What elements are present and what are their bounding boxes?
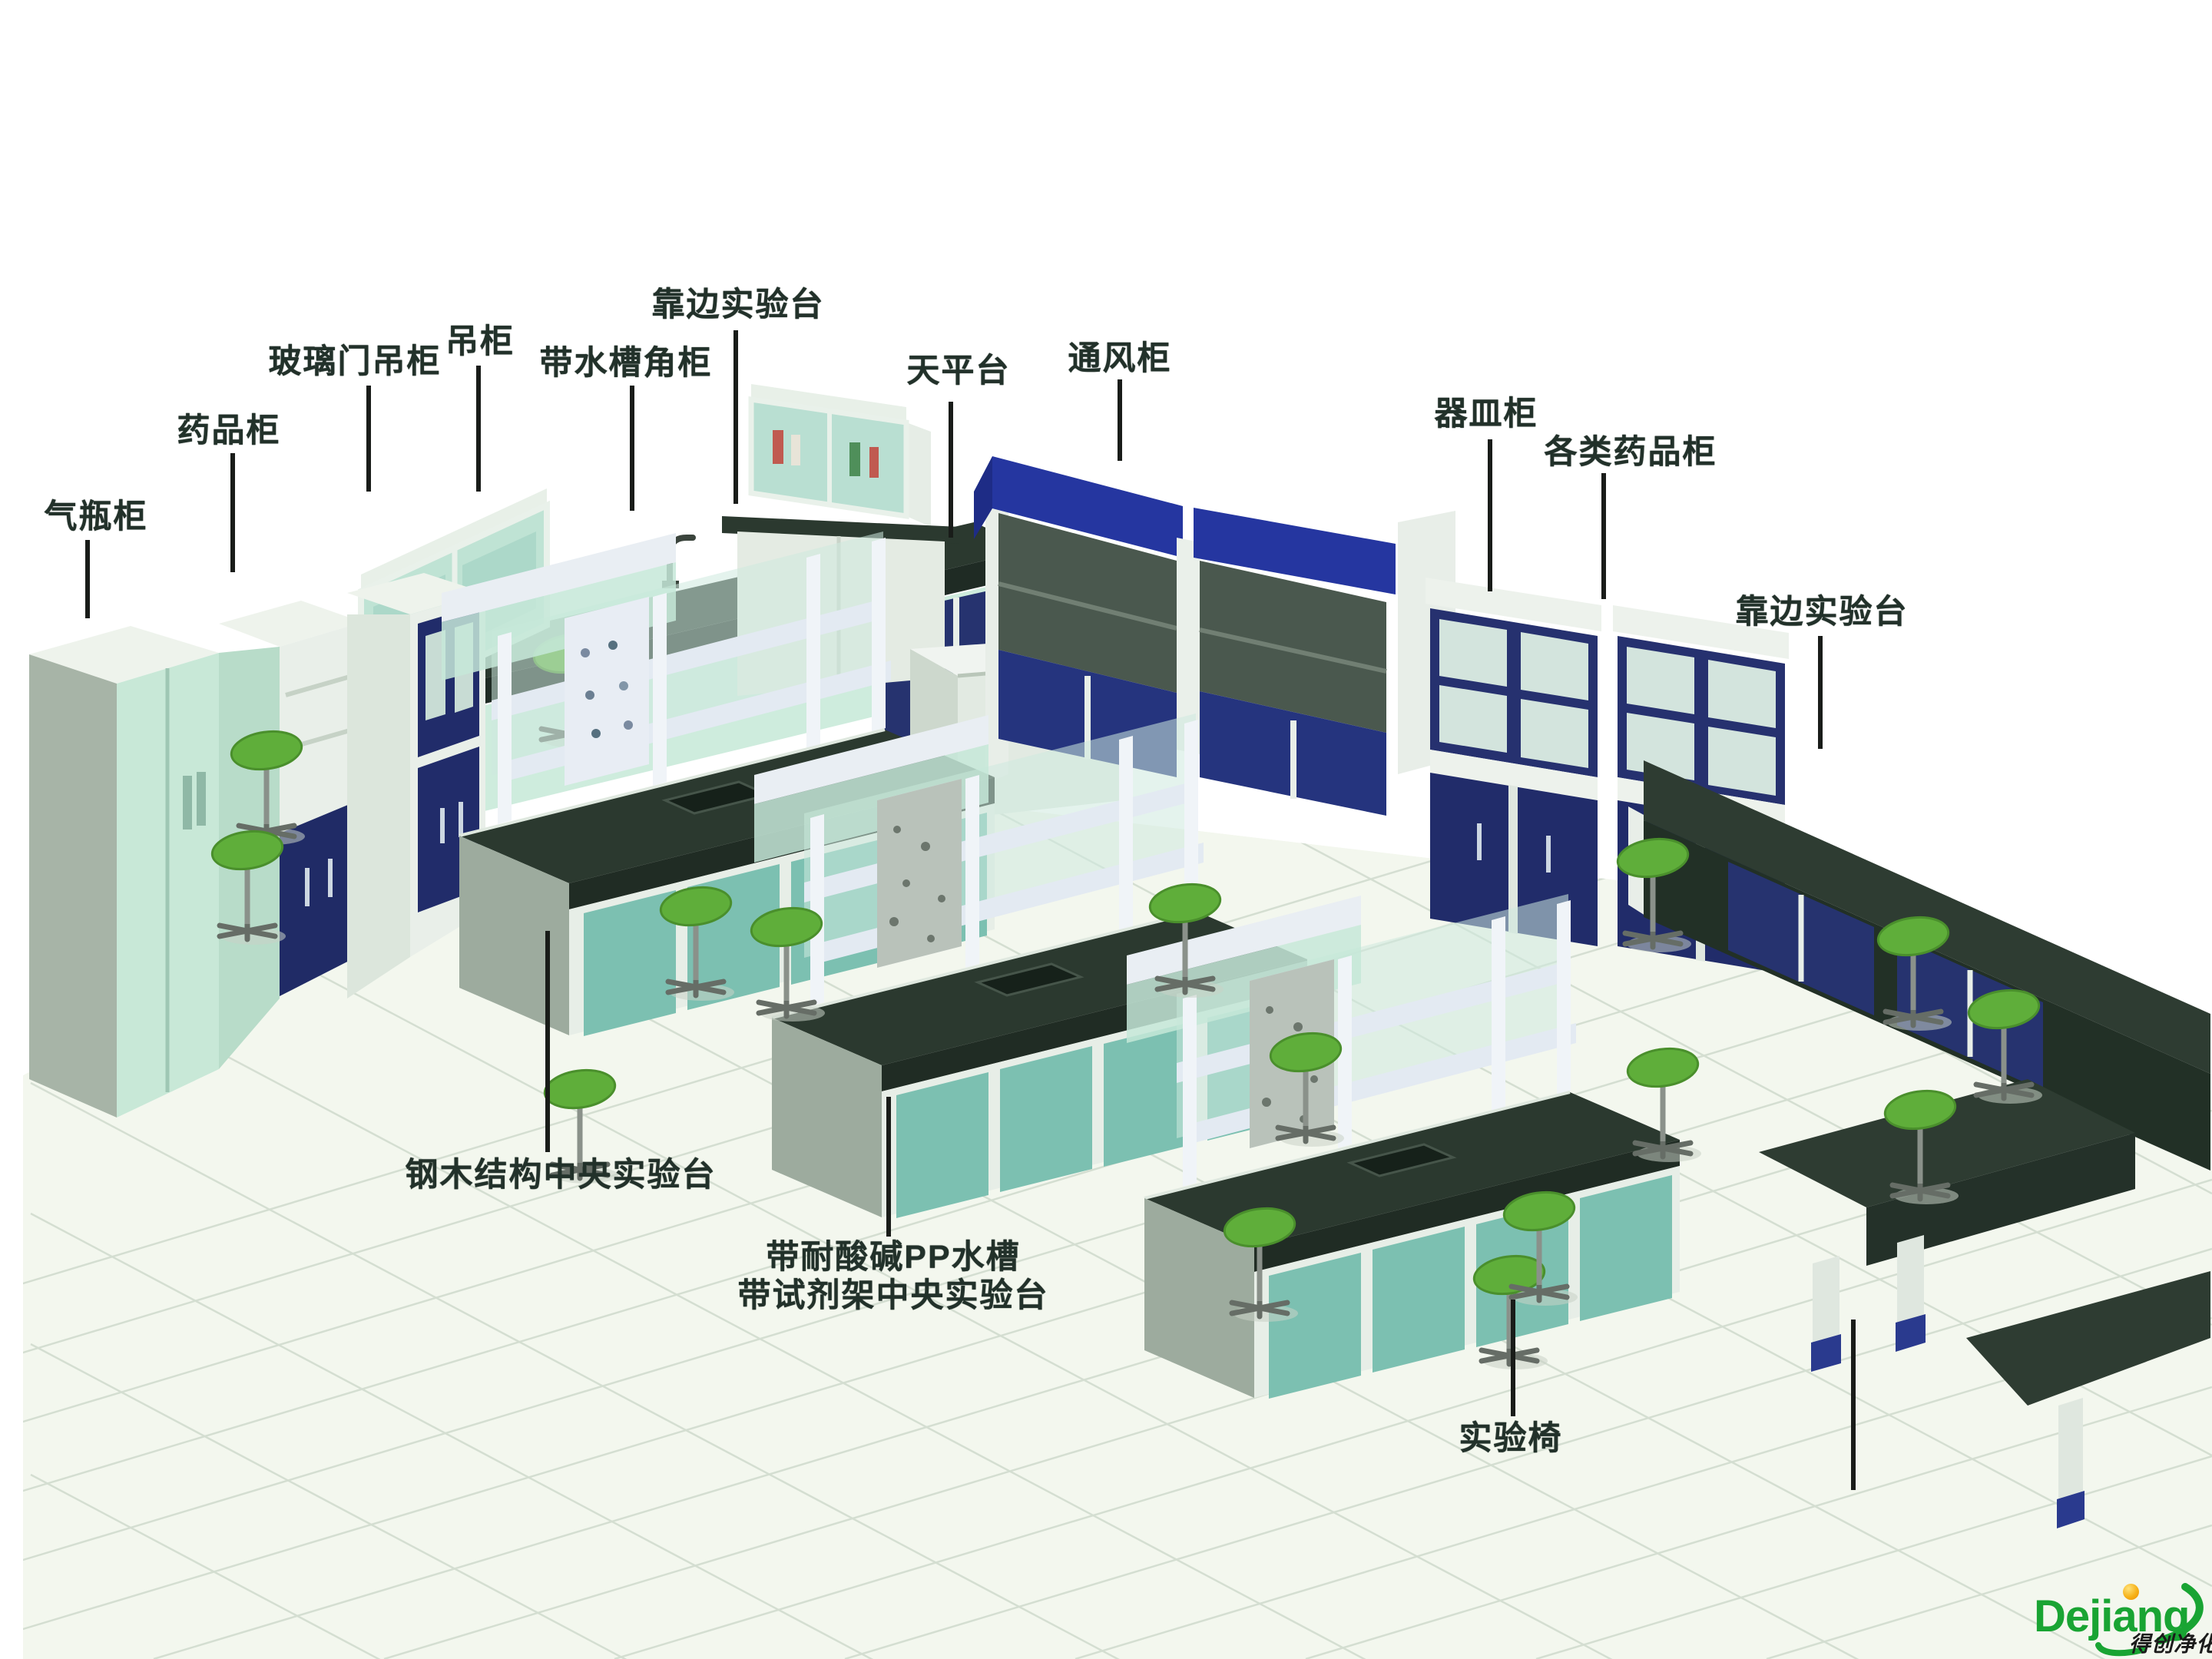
label-central-bench-reagent-rack: 带耐酸碱PP水槽 带试剂架中央实验台 (738, 1238, 1049, 1315)
label-balance-table: 天平台 (907, 352, 1011, 390)
label-lab-chair: 实验椅 (1459, 1419, 1563, 1458)
label-fume-hood: 通风柜 (1068, 339, 1172, 378)
leader-lab-chair (1511, 1300, 1515, 1416)
label-vessel-cabinet: 器皿柜 (1435, 395, 1538, 433)
center-wall-cabinet-graphic (751, 384, 931, 527)
label-assorted-chemical-cabinet: 各类药品柜 (1545, 433, 1717, 472)
label-reagent-rack-line: 带试剂架中央实验台 (738, 1277, 1049, 1315)
leader-side-bench-top (733, 330, 738, 504)
label-corner-cabinet-with-sink: 带水槽角柜 (540, 344, 713, 382)
leader-vessel-cabinet (1488, 439, 1492, 591)
leader-corner-cabinet-with-sink (630, 386, 634, 511)
label-pp-sink-line: 带耐酸碱PP水槽 (738, 1238, 1049, 1277)
gas-cylinder-cabinet-graphic (29, 626, 219, 1118)
label-medicine-cabinet: 药品柜 (177, 412, 281, 450)
label-central-bench-steel-wood: 钢木结构中央实验台 (406, 1156, 717, 1194)
leader-glass-door-wall-cabinet (366, 386, 371, 492)
leader-wall-cabinet (476, 366, 481, 492)
leader-central-bench-reagent-rack (886, 1097, 891, 1237)
leader-unlabeled-bench (1851, 1320, 1856, 1490)
leader-gas-cylinder-cabinet (85, 540, 90, 618)
leader-central-bench-steel-wood (545, 931, 550, 1152)
label-side-bench-top: 靠边实验台 (652, 286, 825, 324)
label-side-bench-right: 靠边实验台 (1736, 593, 1909, 631)
lab-scene-graphic (0, 0, 2212, 1659)
leader-side-bench-right (1818, 636, 1823, 749)
leader-fume-hood (1118, 379, 1122, 461)
logo-orange-dot-icon (2123, 1584, 2139, 1600)
leader-balance-table (949, 402, 953, 538)
label-wall-cabinet: 吊柜 (445, 323, 515, 361)
leader-assorted-chemical-cabinet (1601, 473, 1606, 599)
label-gas-cylinder-cabinet: 气瓶柜 (45, 498, 148, 536)
logo-caption-text: 得创净化 (2129, 1633, 2212, 1656)
leader-medicine-cabinet (230, 453, 235, 572)
label-glass-door-wall-cabinet: 玻璃门吊柜 (269, 343, 442, 381)
dejiang-logo: Dejiang 得创净化 (2028, 1587, 2212, 1657)
lab-layout-illustration: 气瓶柜 药品柜 玻璃门吊柜 吊柜 带水槽角柜 靠边实验台 天平台 通风柜 器皿柜… (0, 0, 2212, 1659)
